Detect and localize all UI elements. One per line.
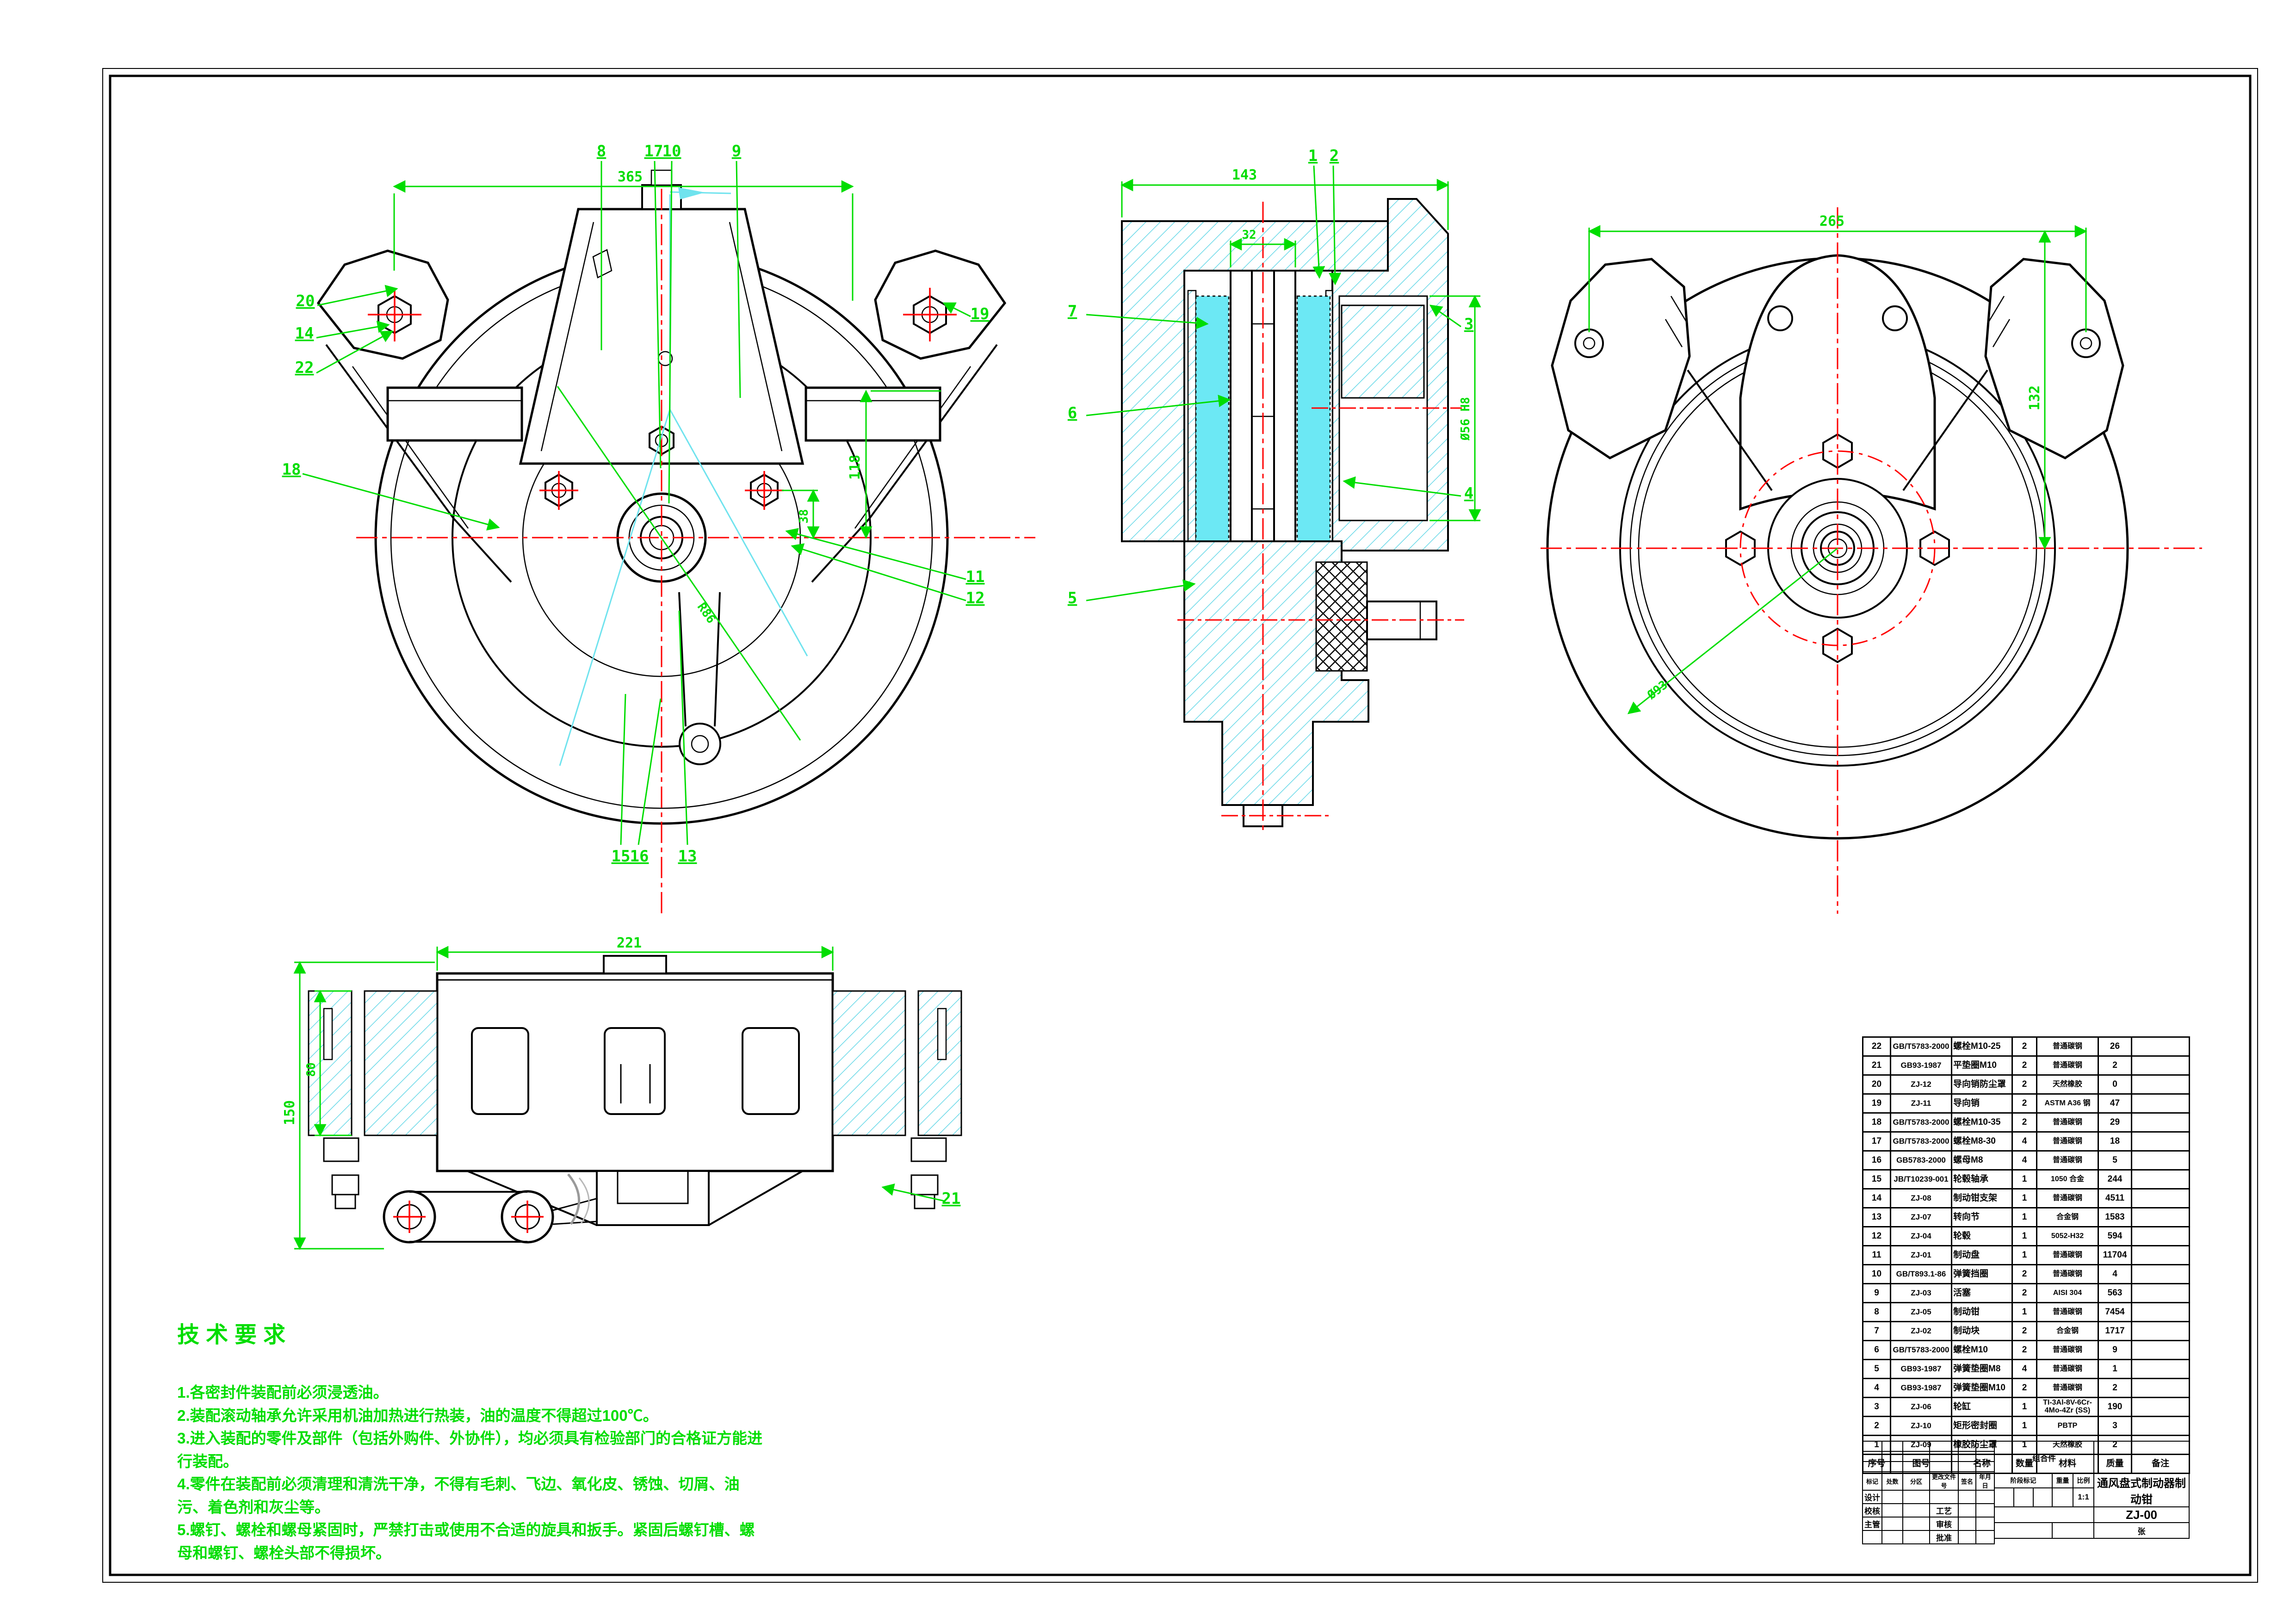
dim-rear-width: 265 <box>1819 213 1844 229</box>
bom-row: 19 ZJ-11 导向销 2 ASTM A36 钢 47 <box>1863 1094 2190 1113</box>
bom-cell-material: TI-3Al-8V-6Cr-4Mo-4Zr (SS) <box>2037 1398 2098 1417</box>
bom-cell-qty: 1 <box>2012 1227 2037 1246</box>
dim-front-offset: 38 <box>797 509 811 523</box>
bom-cell-code: ZJ-12 <box>1891 1075 1952 1094</box>
bom-cell-weight: 1583 <box>2098 1208 2132 1227</box>
bom-cell-note <box>2132 1189 2190 1208</box>
bom-cell-weight: 11704 <box>2098 1246 2132 1265</box>
bom-cell-no: 10 <box>1863 1265 1891 1284</box>
bom-cell-name: 轮毂轴承 <box>1952 1170 2012 1189</box>
bom-cell-name: 导向销 <box>1952 1094 2012 1113</box>
bom-cell-qty: 4 <box>2012 1151 2037 1170</box>
bom-cell-qty: 2 <box>2012 1265 2037 1284</box>
bom-cell-weight: 563 <box>2098 1284 2132 1303</box>
bom-cell-no: 2 <box>1863 1417 1891 1436</box>
bom-cell-name: 轮缸 <box>1952 1398 2012 1417</box>
callout-22: 22 <box>295 359 314 377</box>
bom-cell-qty: 2 <box>2012 1075 2037 1094</box>
tech-requirement-item: 4.零件在装配前必须清理和清洗干净，不得有毛刺、飞边、氧化皮、锈蚀、切屑、油污、… <box>177 1473 765 1518</box>
bom-cell-note <box>2132 1322 2190 1341</box>
bom-row: 11 ZJ-01 制动盘 1 普通碳钢 11704 <box>1863 1246 2190 1265</box>
bom-cell-note <box>2132 1227 2190 1246</box>
dim-section-bore: Ø56 H8 <box>1459 397 1473 441</box>
tb-label-mark: 标记 <box>1863 1472 1882 1490</box>
bom-cell-note <box>2132 1056 2190 1075</box>
bom-cell-material: AISI 304 <box>2037 1284 2098 1303</box>
dim-bottom-height: 150 <box>282 1100 298 1125</box>
bom-cell-material: 普通碳钢 <box>2037 1189 2098 1208</box>
tb-label-process: 工艺 <box>1930 1504 1958 1517</box>
bom-cell-material: 普通碳钢 <box>2037 1056 2098 1075</box>
bom-cell-code: GB/T5783-2000 <box>1891 1132 1952 1151</box>
title-block-revision-grid: 标记 处数 分区 更改文件号 签名 年月日 设计 校核工艺 主管审核 批准 <box>1862 1441 1995 1544</box>
bom-cell-material: 普通碳钢 <box>2037 1379 2098 1398</box>
bom-cell-qty: 2 <box>2012 1056 2037 1075</box>
bom-cell-note <box>2132 1379 2190 1398</box>
bom-row: 6 GB/T5783-2000 螺栓M10 2 普通碳钢 9 <box>1863 1341 2190 1360</box>
bom-cell-weight: 190 <box>2098 1398 2132 1417</box>
bom-cell-note <box>2132 1398 2190 1417</box>
bom-cell-name: 弹簧垫圈M8 <box>1952 1360 2012 1379</box>
bom-cell-weight: 7454 <box>2098 1303 2132 1322</box>
bom-cell-material: 普通碳钢 <box>2037 1151 2098 1170</box>
bom-cell-material: ASTM A36 钢 <box>2037 1094 2098 1113</box>
tech-requirement-item: 1.各密封件装配前必须浸透油。 <box>177 1381 765 1404</box>
tech-requirements-title: 技术要求 <box>177 1316 765 1349</box>
bom-cell-qty: 1 <box>2012 1303 2037 1322</box>
bom-cell-material: 普通碳钢 <box>2037 1037 2098 1056</box>
tb-scale-label: 比例 <box>2073 1474 2094 1488</box>
bom-cell-qty: 2 <box>2012 1322 2037 1341</box>
tb-stage-label: 阶段标记 <box>1994 1474 2052 1488</box>
bom-cell-code: ZJ-03 <box>1891 1284 1952 1303</box>
bom-cell-name: 制动盘 <box>1952 1246 2012 1265</box>
bom-row: 2 ZJ-10 矩形密封圈 1 PBTP 3 <box>1863 1417 2190 1436</box>
bom-cell-code: ZJ-08 <box>1891 1189 1952 1208</box>
callout-16: 16 <box>630 847 649 866</box>
bom-cell-code: GB93-1987 <box>1891 1056 1952 1075</box>
bom-cell-code: ZJ-06 <box>1891 1398 1952 1417</box>
callout-2: 2 <box>1330 147 1339 165</box>
tb-assembly: 组合件 <box>1994 1441 2094 1474</box>
title-block: 标记 处数 分区 更改文件号 签名 年月日 设计 校核工艺 主管审核 批准 组合… <box>1862 1441 2189 1537</box>
bom-row: 13 ZJ-07 转向节 1 合金钢 1583 <box>1863 1208 2190 1227</box>
bom-cell-code: GB/T5783-2000 <box>1891 1113 1952 1132</box>
bom-cell-no: 3 <box>1863 1398 1891 1417</box>
tech-requirement-item: 2.装配滚动轴承允许采用机油加热进行热装，油的温度不得超过100℃。 <box>177 1404 765 1427</box>
bom-cell-name: 弹簧挡圈 <box>1952 1265 2012 1284</box>
bom-cell-name: 导向销防尘罩 <box>1952 1075 2012 1094</box>
tb-scale-value: 1:1 <box>2073 1488 2094 1507</box>
tb-sheet: 张 <box>2094 1523 2189 1538</box>
bom-cell-code: ZJ-04 <box>1891 1227 1952 1246</box>
bom-cell-note <box>2132 1303 2190 1322</box>
bom-row: 16 GB5783-2000 螺母M8 4 普通碳钢 5 <box>1863 1151 2190 1170</box>
bom-cell-weight: 0 <box>2098 1075 2132 1094</box>
bom-cell-qty: 4 <box>2012 1132 2037 1151</box>
callout-19: 19 <box>971 305 990 323</box>
bom-cell-no: 16 <box>1863 1151 1891 1170</box>
bom-cell-no: 7 <box>1863 1322 1891 1341</box>
dim-front-height: 118 <box>847 455 863 480</box>
bom-cell-no: 11 <box>1863 1246 1891 1265</box>
bom-cell-no: 5 <box>1863 1360 1891 1379</box>
callout-8: 8 <box>597 142 606 161</box>
bom-cell-name: 轮毂 <box>1952 1227 2012 1246</box>
bom-cell-qty: 1 <box>2012 1208 2037 1227</box>
tb-label-date: 年月日 <box>1976 1472 1994 1490</box>
bom-row: 3 ZJ-06 轮缸 1 TI-3Al-8V-6Cr-4Mo-4Zr (SS) … <box>1863 1398 2190 1417</box>
bom-row: 10 GB/T893.1-86 弹簧挡圈 2 普通碳钢 4 <box>1863 1265 2190 1284</box>
bom-cell-weight: 2 <box>2098 1379 2132 1398</box>
bom-table: 22 GB/T5783-2000 螺栓M10-25 2 普通碳钢 26 21 G… <box>1862 1036 2190 1474</box>
callout-6: 6 <box>1068 404 1077 422</box>
bom-cell-note <box>2132 1075 2190 1094</box>
bom-cell-material: 普通碳钢 <box>2037 1132 2098 1151</box>
tb-weight-value <box>2052 1488 2073 1507</box>
dim-rear-height: 132 <box>2027 385 2043 410</box>
bom-cell-no: 8 <box>1863 1303 1891 1322</box>
bom-cell-code: GB93-1987 <box>1891 1379 1952 1398</box>
bom-cell-qty: 1 <box>2012 1189 2037 1208</box>
bom-cell-material: 普通碳钢 <box>2037 1246 2098 1265</box>
bom-cell-name: 螺母M8 <box>1952 1151 2012 1170</box>
dim-section-inner: 32 <box>1242 228 1256 242</box>
bom-cell-weight: 1717 <box>2098 1322 2132 1341</box>
bom-cell-qty: 2 <box>2012 1341 2037 1360</box>
callout-14: 14 <box>295 324 314 343</box>
dim-front-width: 365 <box>618 169 643 185</box>
bom-cell-no: 22 <box>1863 1037 1891 1056</box>
bom-cell-code: ZJ-05 <box>1891 1303 1952 1322</box>
bom-cell-qty: 4 <box>2012 1360 2037 1379</box>
bom-row: 17 GB/T5783-2000 螺栓M8-30 4 普通碳钢 18 <box>1863 1132 2190 1151</box>
bom-cell-material: 5052-H32 <box>2037 1227 2098 1246</box>
tb-label-sign: 签名 <box>1958 1472 1976 1490</box>
bom-cell-note <box>2132 1360 2190 1379</box>
bom-cell-code: ZJ-07 <box>1891 1208 1952 1227</box>
bom-cell-material: 普通碳钢 <box>2037 1360 2098 1379</box>
bom-cell-name: 矩形密封圈 <box>1952 1417 2012 1436</box>
bom-cell-code: ZJ-02 <box>1891 1322 1952 1341</box>
bom-cell-name: 螺栓M8-30 <box>1952 1132 2012 1151</box>
bom-cell-no: 18 <box>1863 1113 1891 1132</box>
bom-cell-qty: 2 <box>2012 1284 2037 1303</box>
bom-row: 20 ZJ-12 导向销防尘罩 2 天然橡胶 0 <box>1863 1075 2190 1094</box>
bom-cell-note <box>2132 1265 2190 1284</box>
bom-cell-qty: 1 <box>2012 1417 2037 1436</box>
bom-cell-no: 9 <box>1863 1284 1891 1303</box>
callout-5: 5 <box>1068 589 1077 607</box>
bom-row: 7 ZJ-02 制动块 2 合金钢 1717 <box>1863 1322 2190 1341</box>
bom-cell-no: 15 <box>1863 1170 1891 1189</box>
tb-drawing-number: ZJ-00 <box>2094 1507 2189 1523</box>
callout-3: 3 <box>1464 315 1473 334</box>
bottom-view <box>309 956 961 1242</box>
bom-cell-name: 制动块 <box>1952 1322 2012 1341</box>
bom-row: 9 ZJ-03 活塞 2 AISI 304 563 <box>1863 1284 2190 1303</box>
tb-label-check: 校核 <box>1863 1504 1882 1517</box>
bom-row: 8 ZJ-05 制动钳 1 普通碳钢 7454 <box>1863 1303 2190 1322</box>
bom-cell-note <box>2132 1417 2190 1436</box>
bom-cell-material: 合金钢 <box>2037 1208 2098 1227</box>
bom-cell-qty: 1 <box>2012 1170 2037 1189</box>
callout-21: 21 <box>942 1189 961 1208</box>
bom-cell-weight: 26 <box>2098 1037 2132 1056</box>
bom-cell-weight: 9 <box>2098 1341 2132 1360</box>
bom-cell-weight: 594 <box>2098 1227 2132 1246</box>
callout-10: 10 <box>662 142 681 161</box>
callout-18: 18 <box>282 460 301 479</box>
bom-cell-no: 4 <box>1863 1379 1891 1398</box>
technical-requirements: 技术要求 1.各密封件装配前必须浸透油。2.装配滚动轴承允许采用机油加热进行热装… <box>177 1316 765 1564</box>
bom-cell-qty: 2 <box>2012 1094 2037 1113</box>
callout-20: 20 <box>296 292 315 310</box>
bom-cell-qty: 2 <box>2012 1037 2037 1056</box>
bom-row: 12 ZJ-04 轮毂 1 5052-H32 594 <box>1863 1227 2190 1246</box>
bom-cell-weight: 5 <box>2098 1151 2132 1170</box>
bom-cell-weight: 3 <box>2098 1417 2132 1436</box>
bom-cell-no: 12 <box>1863 1227 1891 1246</box>
tb-weight-label: 重量 <box>2052 1474 2073 1488</box>
tb-label-chief: 主管 <box>1863 1517 1882 1530</box>
tb-label-audit: 审核 <box>1930 1517 1958 1530</box>
bom-cell-material: 普通碳钢 <box>2037 1303 2098 1322</box>
bom-cell-name: 制动钳 <box>1952 1303 2012 1322</box>
bom-cell-note <box>2132 1132 2190 1151</box>
bom-cell-code: GB93-1987 <box>1891 1360 1952 1379</box>
bom-cell-code: JB/T10239-001 <box>1891 1170 1952 1189</box>
bom-row: 4 GB93-1987 弹簧垫圈M10 2 普通碳钢 2 <box>1863 1379 2190 1398</box>
bom-cell-material: 天然橡胶 <box>2037 1075 2098 1094</box>
bom-cell-no: 6 <box>1863 1341 1891 1360</box>
bom-cell-material: 合金钢 <box>2037 1322 2098 1341</box>
bom-cell-code: GB/T893.1-86 <box>1891 1265 1952 1284</box>
bom-cell-code: GB5783-2000 <box>1891 1151 1952 1170</box>
callout-13: 13 <box>678 847 697 866</box>
section-view <box>1122 199 1448 826</box>
bom-cell-weight: 4 <box>2098 1265 2132 1284</box>
bom-cell-no: 13 <box>1863 1208 1891 1227</box>
bom-cell-code: GB/T5783-2000 <box>1891 1037 1952 1056</box>
bom-cell-weight: 1 <box>2098 1360 2132 1379</box>
tech-requirement-item: 5.螺钉、螺栓和螺母紧固时，严禁打击或使用不合适的旋具和扳手。紧固后螺钉槽、螺母… <box>177 1518 765 1564</box>
bom-row: 15 JB/T10239-001 轮毂轴承 1 1050 合金 244 <box>1863 1170 2190 1189</box>
bom-cell-weight: 4511 <box>2098 1189 2132 1208</box>
bom-row: 22 GB/T5783-2000 螺栓M10-25 2 普通碳钢 26 <box>1863 1037 2190 1056</box>
dim-bottom-width: 221 <box>617 935 642 951</box>
bom-cell-qty: 1 <box>2012 1246 2037 1265</box>
tb-drawing-title: 通风盘式制动器制动钳 <box>2094 1474 2189 1507</box>
callout-15: 15 <box>612 847 631 866</box>
title-block-main: 组合件 阶段标记 重量 比例 通风盘式制动器制动钳 1:1 ZJ-00 张 <box>1994 1441 2190 1539</box>
dim-section-width: 143 <box>1232 167 1257 183</box>
bom-cell-name: 弹簧垫圈M10 <box>1952 1379 2012 1398</box>
callout-7: 7 <box>1068 302 1077 321</box>
bom-cell-material: 1050 合金 <box>2037 1170 2098 1189</box>
bom-cell-no: 20 <box>1863 1075 1891 1094</box>
bom-cell-name: 螺栓M10 <box>1952 1341 2012 1360</box>
callout-4: 4 <box>1464 484 1473 503</box>
bom-cell-qty: 1 <box>2012 1398 2037 1417</box>
callout-11: 11 <box>966 568 985 586</box>
bom-cell-weight: 29 <box>2098 1113 2132 1132</box>
bom-cell-code: GB/T5783-2000 <box>1891 1341 1952 1360</box>
tb-label-zone: 分区 <box>1903 1472 1930 1490</box>
bom-cell-note <box>2132 1208 2190 1227</box>
dim-bottom-pad: 80 <box>304 1062 318 1077</box>
bom-row: 5 GB93-1987 弹簧垫圈M8 4 普通碳钢 1 <box>1863 1360 2190 1379</box>
drawing-sheet: 365 8 17 10 9 20 14 22 18 19 11 12 15 16… <box>0 0 2296 1623</box>
bom-cell-qty: 2 <box>2012 1113 2037 1132</box>
bom-cell-note <box>2132 1037 2190 1056</box>
bom-cell-name: 转向节 <box>1952 1208 2012 1227</box>
bom-cell-no: 19 <box>1863 1094 1891 1113</box>
bom-row: 18 GB/T5783-2000 螺栓M10-35 2 普通碳钢 29 <box>1863 1113 2190 1132</box>
bom-cell-weight: 47 <box>2098 1094 2132 1113</box>
bom-cell-no: 21 <box>1863 1056 1891 1075</box>
bom-row: 14 ZJ-08 制动钳支架 1 普通碳钢 4511 <box>1863 1189 2190 1208</box>
bom-cell-note <box>2132 1170 2190 1189</box>
tb-label-approve: 批准 <box>1930 1530 1958 1544</box>
callout-9: 9 <box>732 142 741 161</box>
bom-cell-note <box>2132 1151 2190 1170</box>
dim-front-radius: R86 <box>694 601 718 626</box>
bom-cell-note <box>2132 1113 2190 1132</box>
bom-cell-note <box>2132 1094 2190 1113</box>
bom-cell-material: 普通碳钢 <box>2037 1265 2098 1284</box>
bom-cell-note <box>2132 1246 2190 1265</box>
bom-cell-weight: 244 <box>2098 1170 2132 1189</box>
bom-cell-qty: 2 <box>2012 1379 2037 1398</box>
bom-cell-name: 平垫圈M10 <box>1952 1056 2012 1075</box>
bom-cell-material: 普通碳钢 <box>2037 1341 2098 1360</box>
bom-cell-material: 普通碳钢 <box>2037 1113 2098 1132</box>
tech-requirement-item: 3.进入装配的零件及部件（包括外购件、外协件），均必须具有检验部门的合格证方能进… <box>177 1427 765 1473</box>
bom-cell-note <box>2132 1341 2190 1360</box>
bom-cell-no: 17 <box>1863 1132 1891 1151</box>
tb-label-docno: 更改文件号 <box>1930 1472 1958 1490</box>
bom-cell-note <box>2132 1284 2190 1303</box>
bom-cell-weight: 18 <box>2098 1132 2132 1151</box>
tb-label-design: 设计 <box>1863 1490 1882 1504</box>
bom-cell-name: 螺栓M10-35 <box>1952 1113 2012 1132</box>
callout-1: 1 <box>1308 147 1318 165</box>
callout-12: 12 <box>966 589 985 607</box>
bom-cell-code: ZJ-01 <box>1891 1246 1952 1265</box>
tb-material-cell <box>2094 1441 2189 1474</box>
bom-cell-code: ZJ-10 <box>1891 1417 1952 1436</box>
bom-cell-code: ZJ-11 <box>1891 1094 1952 1113</box>
bom-cell-no: 14 <box>1863 1189 1891 1208</box>
bom-cell-name: 螺栓M10-25 <box>1952 1037 2012 1056</box>
callout-17: 17 <box>644 142 663 161</box>
bom-cell-material: PBTP <box>2037 1417 2098 1436</box>
bom-cell-weight: 2 <box>2098 1056 2132 1075</box>
tb-label-count: 处数 <box>1882 1472 1903 1490</box>
bom-cell-name: 制动钳支架 <box>1952 1189 2012 1208</box>
bom-row: 21 GB93-1987 平垫圈M10 2 普通碳钢 2 <box>1863 1056 2190 1075</box>
bom-cell-name: 活塞 <box>1952 1284 2012 1303</box>
